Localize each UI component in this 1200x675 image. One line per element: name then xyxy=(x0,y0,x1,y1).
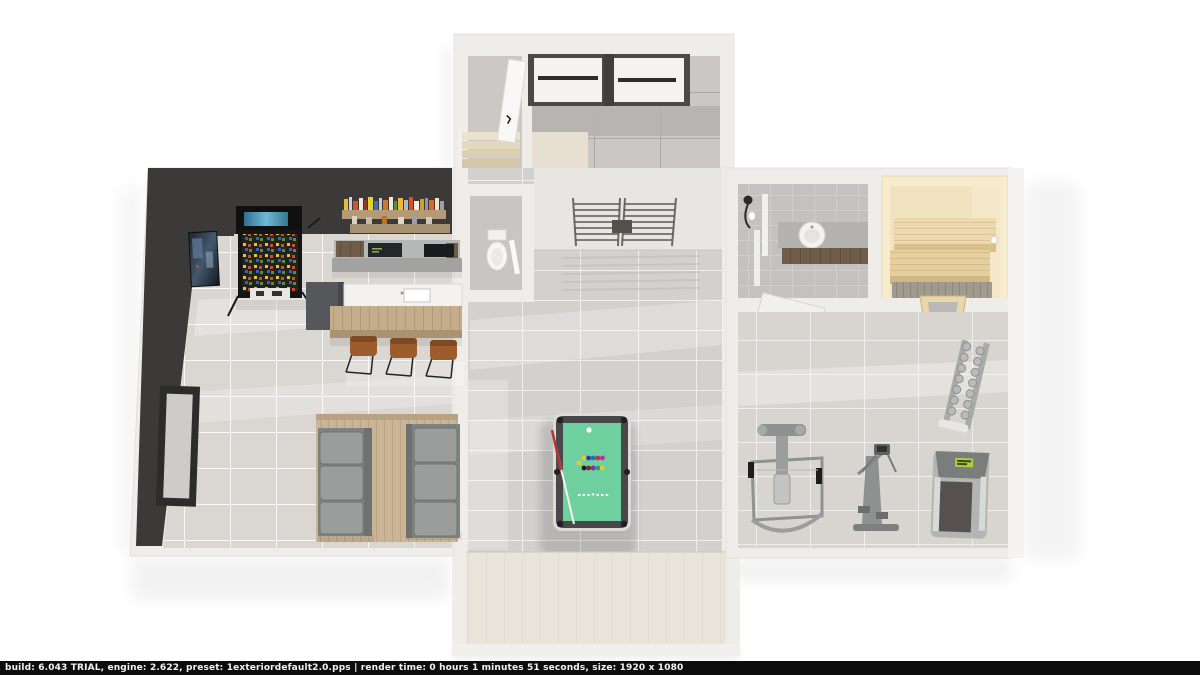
pool-table xyxy=(540,413,636,556)
counter-panel xyxy=(424,244,454,257)
hall-north-wall-face xyxy=(534,168,722,250)
unfinished-room xyxy=(452,552,740,656)
basement-window xyxy=(156,385,200,506)
status-text: build: 6.043 TRIAL, engine: 2.622, prese… xyxy=(5,663,683,673)
table-felt xyxy=(563,423,621,521)
toilet xyxy=(487,230,507,270)
status-bar: build: 6.043 TRIAL, engine: 2.622, prese… xyxy=(0,661,1200,675)
east-exterior-wall xyxy=(1008,168,1024,558)
pinball-screen xyxy=(244,212,288,226)
wall-poster xyxy=(189,231,220,286)
entry-mat xyxy=(520,106,720,136)
treadmill-sticker xyxy=(955,458,973,468)
cooktop xyxy=(368,243,402,257)
island-counter xyxy=(344,284,462,308)
sofa-right xyxy=(406,424,462,540)
right-wing xyxy=(726,168,1024,558)
sauna-bench-lower xyxy=(890,250,990,276)
vanity-cabinet xyxy=(782,248,870,264)
treadmill xyxy=(931,451,990,539)
glass-partition xyxy=(762,194,768,256)
hallway xyxy=(452,168,740,656)
door-handle-bar xyxy=(618,78,676,82)
bathroom xyxy=(738,184,870,298)
bar-top xyxy=(330,306,462,332)
glass-partition xyxy=(754,230,760,286)
sauna xyxy=(882,176,1008,306)
gym xyxy=(738,312,1008,548)
render-window: build: 6.043 TRIAL, engine: 2.622, prese… xyxy=(0,0,1200,675)
back-counter xyxy=(332,240,462,278)
pinball-playfield xyxy=(242,234,298,292)
render-viewport xyxy=(0,0,1200,661)
sofa-left xyxy=(318,428,374,542)
wc-room xyxy=(460,184,534,302)
cue-ball xyxy=(586,427,591,432)
double-entry-door xyxy=(528,54,690,106)
sauna-bench-upper xyxy=(894,218,996,244)
door-handle-bar xyxy=(538,76,598,80)
vanity-sink xyxy=(778,222,870,264)
entry-hall xyxy=(454,34,734,168)
treadmill-belt xyxy=(939,481,973,532)
island-sink xyxy=(404,289,430,302)
console-screen xyxy=(877,446,887,452)
game-room xyxy=(130,168,464,556)
sauna-light xyxy=(991,237,998,244)
